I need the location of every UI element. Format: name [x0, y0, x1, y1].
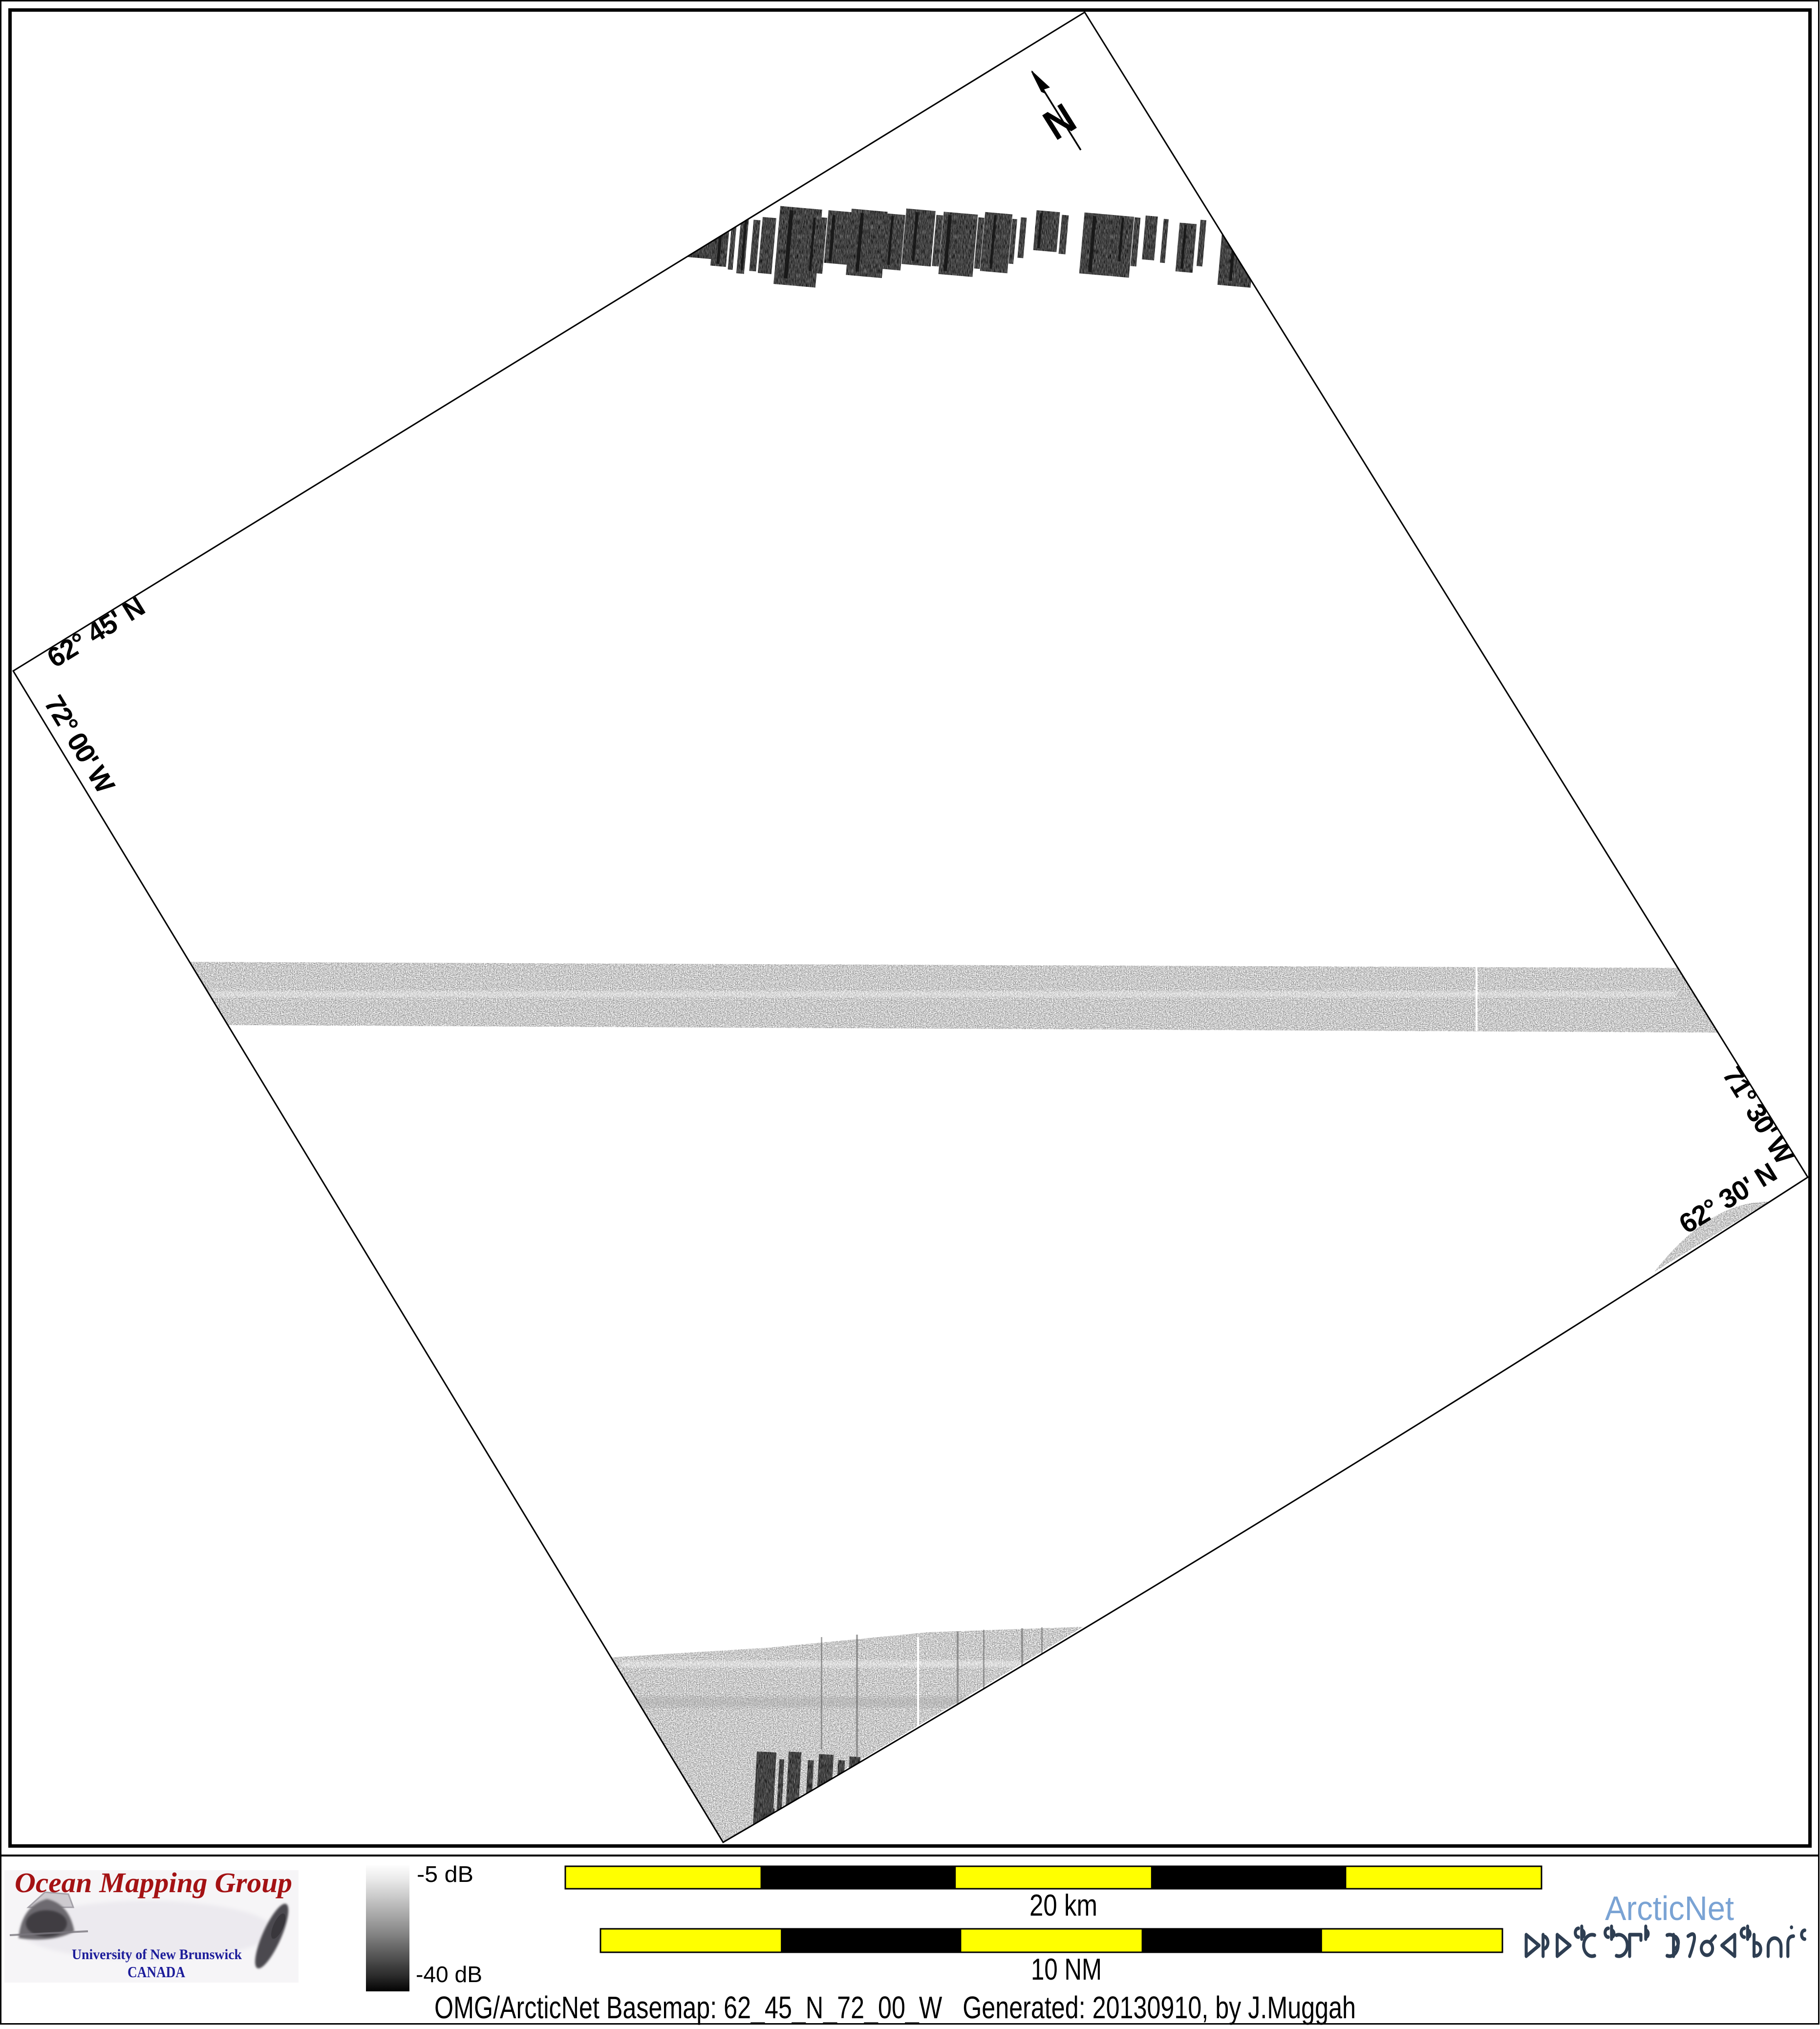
svg-text:20 km: 20 km: [1029, 1889, 1097, 1922]
svg-text:Ocean Mapping Group: Ocean Mapping Group: [15, 1867, 292, 1899]
svg-text:10 NM: 10 NM: [1031, 1953, 1102, 1986]
svg-text:-5 dB: -5 dB: [417, 1861, 473, 1887]
svg-text:ArcticNet: ArcticNet: [1605, 1890, 1734, 1928]
svg-text:University of New Brunswick: University of New Brunswick: [72, 1946, 242, 1963]
svg-text:OMG/ArcticNet Basemap: 62_45_N: OMG/ArcticNet Basemap: 62_45_N_72_00_W G…: [434, 1990, 1356, 2025]
svg-text:CANADA: CANADA: [128, 1963, 185, 1981]
svg-text:-40 dB: -40 dB: [416, 1962, 482, 1987]
